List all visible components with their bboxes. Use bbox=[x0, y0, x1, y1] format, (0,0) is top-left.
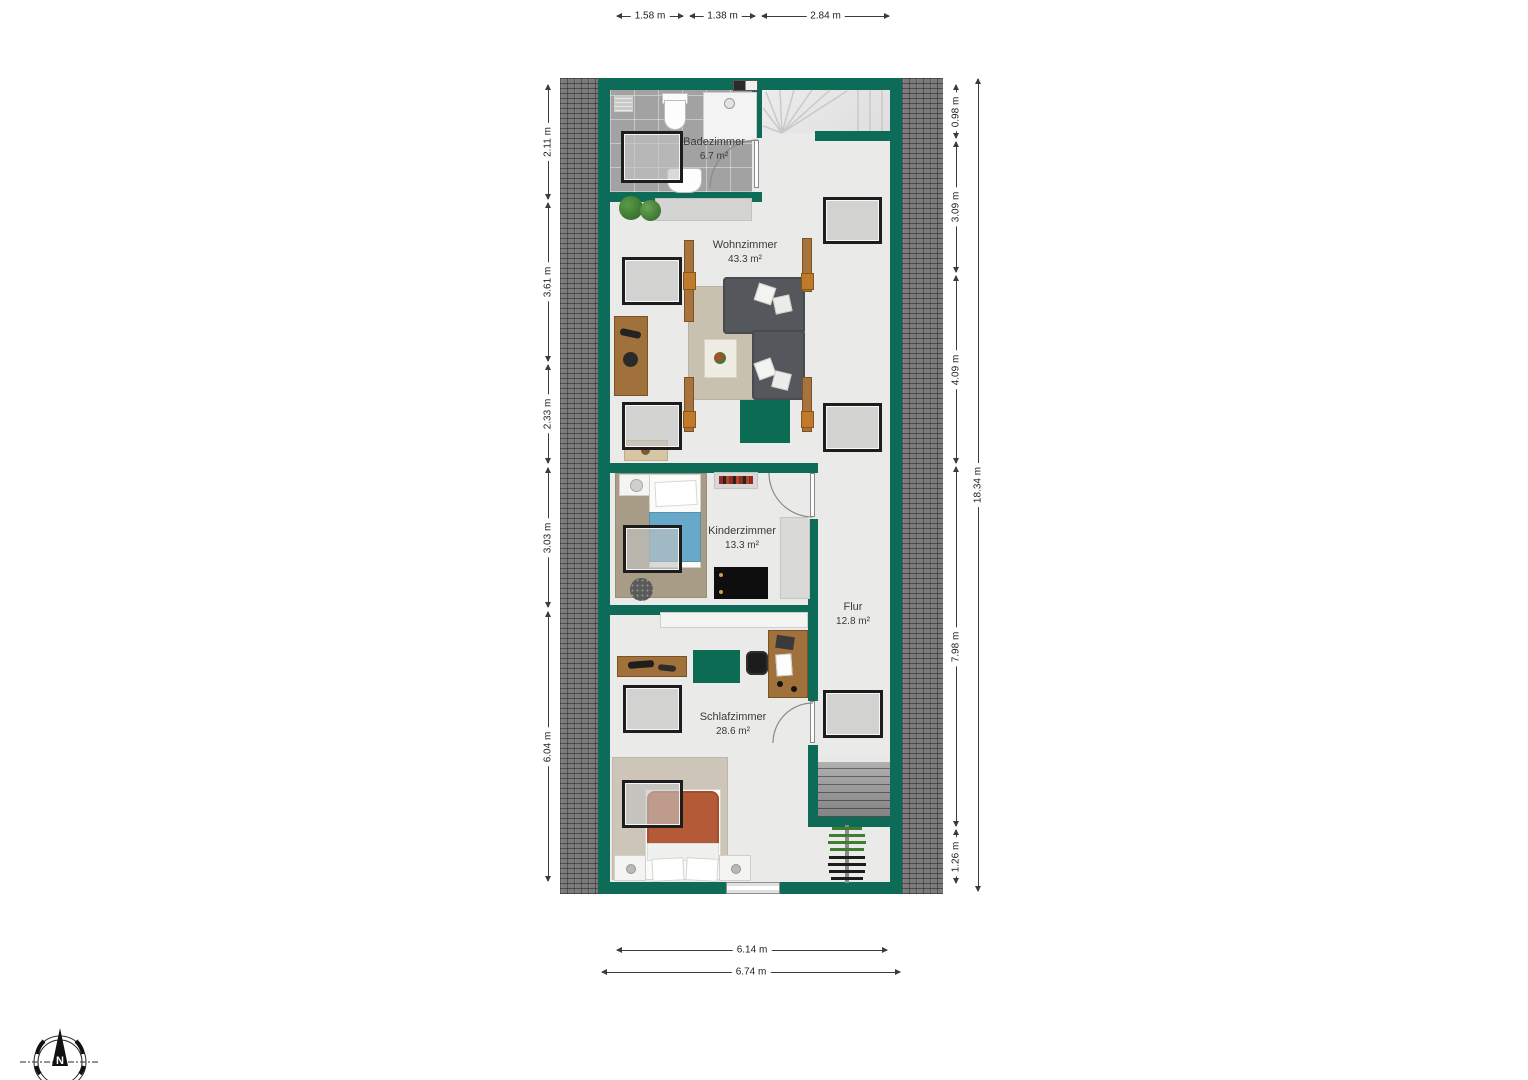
dimension-right-3: 4.09 m bbox=[950, 275, 962, 464]
dimension-value: 1.38 m bbox=[703, 11, 742, 22]
dimension-value: 6.74 m bbox=[732, 967, 771, 978]
dimension-value: 18.34 m bbox=[973, 463, 984, 507]
floor-plan: Badezimmer 6.7 m² Wohnzimmer 43.3 m² Kin… bbox=[0, 0, 1528, 1080]
dimension-left-5: 6.04 m bbox=[542, 611, 554, 882]
dimension-right-2: 3.09 m bbox=[950, 141, 962, 273]
room-area: 28.6 m² bbox=[700, 725, 767, 739]
dimension-value: 1.26 m bbox=[951, 837, 962, 876]
dimension-value: 4.09 m bbox=[951, 350, 962, 389]
dimension-left-1: 2.11 m bbox=[542, 84, 554, 200]
compass-north-label: N bbox=[56, 1055, 64, 1067]
dimension-top-3: 2.84 m bbox=[761, 10, 890, 22]
room-label-wohnzimmer: Wohnzimmer 43.3 m² bbox=[713, 238, 778, 266]
room-area: 13.3 m² bbox=[708, 539, 776, 553]
fir-tree-plant bbox=[828, 825, 866, 883]
room-label-badezimmer: Badezimmer 6.7 m² bbox=[683, 135, 745, 163]
dimension-value: 6.04 m bbox=[543, 727, 554, 766]
dimension-right-4: 7.98 m bbox=[950, 466, 962, 827]
dimension-value: 2.84 m bbox=[806, 11, 845, 22]
room-label-kinderzimmer: Kinderzimmer 13.3 m² bbox=[708, 524, 776, 552]
room-name: Schlafzimmer bbox=[700, 710, 767, 725]
room-label-flur: Flur 12.8 m² bbox=[836, 600, 870, 628]
dimension-top-1: 1.58 m bbox=[616, 10, 684, 22]
dimension-left-2: 3.61 m bbox=[542, 202, 554, 362]
dimension-top-2: 1.38 m bbox=[689, 10, 756, 22]
dimension-left-4: 3.03 m bbox=[542, 467, 554, 608]
compass-rose: N bbox=[18, 1016, 102, 1080]
dimension-left-3: 2.33 m bbox=[542, 364, 554, 464]
room-name: Wohnzimmer bbox=[713, 238, 778, 253]
dimension-right-total: 18.34 m bbox=[972, 78, 984, 892]
room-label-schlafzimmer: Schlafzimmer 28.6 m² bbox=[700, 710, 767, 738]
room-name: Flur bbox=[836, 600, 870, 615]
dimension-value: 3.03 m bbox=[543, 518, 554, 557]
stair-winder-lines bbox=[763, 90, 882, 133]
room-name: Badezimmer bbox=[683, 135, 745, 150]
dimension-value: 3.09 m bbox=[951, 188, 962, 227]
dimension-value: 0.98 m bbox=[951, 92, 962, 131]
dimension-bottom-2: 6.74 m bbox=[601, 966, 901, 978]
dimension-value: 3.61 m bbox=[543, 263, 554, 302]
dimension-value: 2.33 m bbox=[543, 395, 554, 434]
room-name: Kinderzimmer bbox=[708, 524, 776, 539]
dimension-value: 2.11 m bbox=[543, 123, 554, 161]
room-area: 12.8 m² bbox=[836, 615, 870, 629]
dimension-right-5: 1.26 m bbox=[950, 829, 962, 884]
dimension-value: 7.98 m bbox=[951, 627, 962, 666]
dimension-value: 1.58 m bbox=[631, 11, 670, 22]
room-area: 6.7 m² bbox=[683, 150, 745, 164]
room-area: 43.3 m² bbox=[713, 253, 778, 267]
dimension-right-1: 0.98 m bbox=[950, 84, 962, 139]
dimension-value: 6.14 m bbox=[733, 945, 772, 956]
dimension-bottom-1: 6.14 m bbox=[616, 944, 888, 956]
door-swing-arcs bbox=[710, 140, 813, 743]
